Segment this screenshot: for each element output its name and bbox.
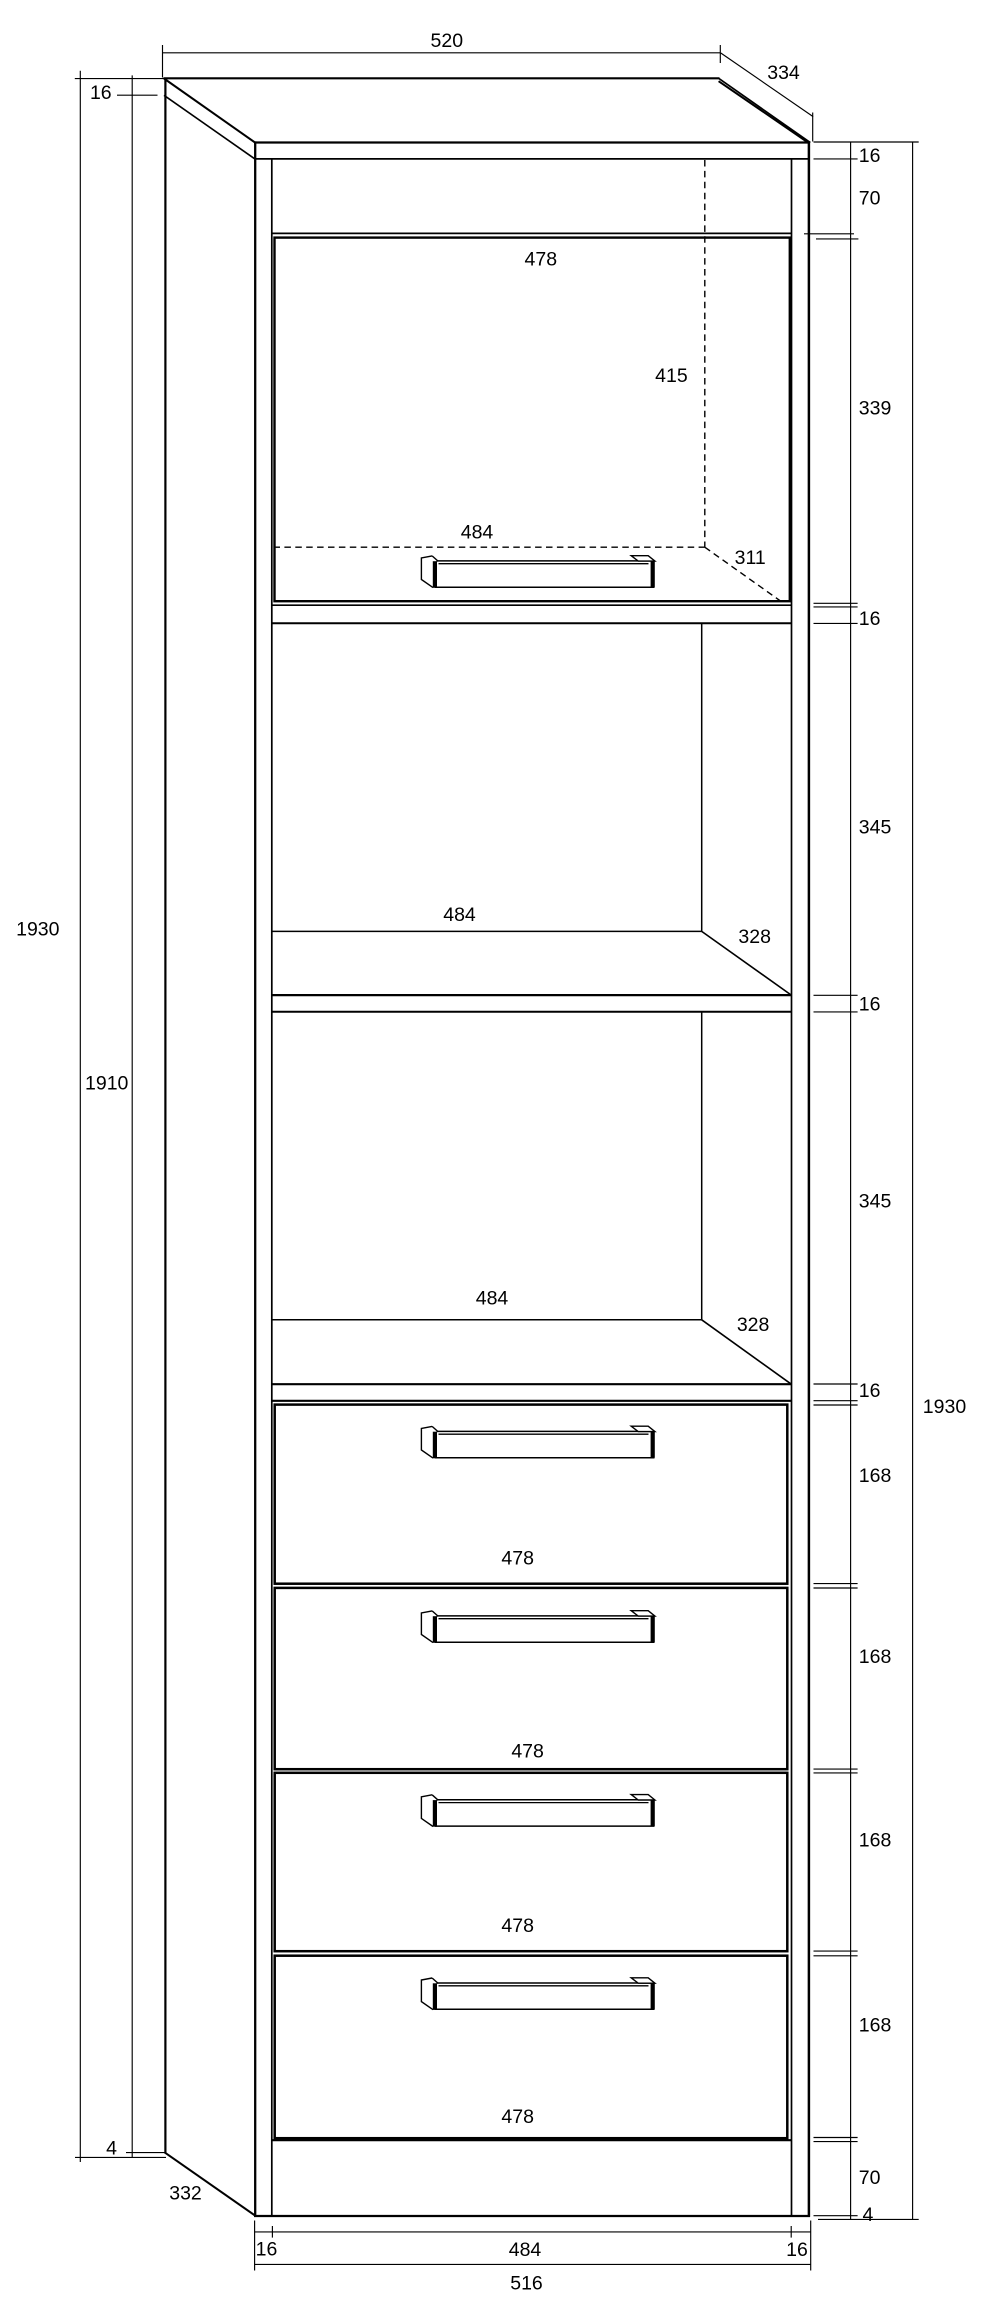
svg-text:478: 478 <box>501 1915 534 1937</box>
svg-text:520: 520 <box>431 30 464 52</box>
svg-text:16: 16 <box>256 2238 278 2260</box>
svg-text:345: 345 <box>859 1191 892 1213</box>
svg-text:16: 16 <box>90 82 112 104</box>
svg-text:484: 484 <box>476 1287 509 1309</box>
svg-text:311: 311 <box>735 547 766 569</box>
svg-text:168: 168 <box>859 1829 892 1851</box>
svg-text:1910: 1910 <box>85 1073 129 1095</box>
svg-text:328: 328 <box>738 926 771 948</box>
svg-text:16: 16 <box>859 993 881 1015</box>
svg-text:70: 70 <box>859 188 881 210</box>
svg-text:332: 332 <box>169 2183 202 2205</box>
svg-text:339: 339 <box>859 398 892 420</box>
svg-text:484: 484 <box>509 2239 542 2261</box>
svg-text:345: 345 <box>859 816 892 838</box>
svg-text:328: 328 <box>737 1314 770 1336</box>
svg-text:168: 168 <box>859 1465 892 1487</box>
svg-text:478: 478 <box>525 249 558 271</box>
svg-text:168: 168 <box>859 2015 892 2037</box>
svg-text:16: 16 <box>786 2239 808 2261</box>
svg-text:1930: 1930 <box>923 1396 967 1418</box>
svg-text:478: 478 <box>511 1741 544 1763</box>
svg-text:4: 4 <box>863 2204 874 2226</box>
svg-text:1930: 1930 <box>16 919 60 941</box>
svg-text:334: 334 <box>767 62 800 84</box>
svg-text:16: 16 <box>859 145 881 167</box>
svg-text:4: 4 <box>106 2138 117 2160</box>
svg-text:478: 478 <box>501 2106 534 2128</box>
svg-text:478: 478 <box>501 1548 534 1570</box>
svg-text:415: 415 <box>655 365 688 387</box>
svg-text:16: 16 <box>859 608 881 630</box>
svg-text:168: 168 <box>859 1646 892 1668</box>
svg-text:516: 516 <box>510 2272 543 2294</box>
svg-text:16: 16 <box>859 1380 881 1402</box>
svg-text:484: 484 <box>443 904 476 926</box>
svg-text:484: 484 <box>461 521 494 543</box>
svg-text:70: 70 <box>859 2167 881 2189</box>
